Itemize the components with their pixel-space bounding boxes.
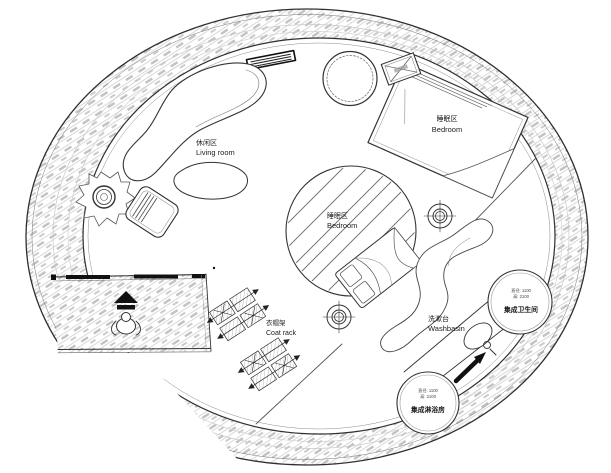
- drawing-dot: [213, 267, 215, 269]
- coat-rack-label-en: Coat rack: [266, 330, 296, 337]
- shower-pod-height: 高: 2100: [420, 393, 437, 400]
- bedroom-center-label-zh: 睡眠区: [327, 212, 348, 220]
- bathroom-pod: 直径: 1100 高: 2100 集成卫生间: [488, 270, 552, 334]
- floor-plan-canvas: 睡眠区 Bedroom: [0, 0, 611, 473]
- washbasin-label-en: Washbasin: [428, 324, 465, 333]
- bathroom-pod-height: 高: 2100: [513, 293, 530, 300]
- bathroom-pod-diameter: 直径: 1100: [511, 287, 531, 293]
- bedroom-upper-label-zh: 睡眠区: [437, 115, 458, 123]
- bathroom-pod-name: 集成卫生间: [503, 305, 538, 314]
- living-label-en: Living room: [196, 148, 235, 157]
- round-table: [323, 52, 377, 106]
- shower-pod-diameter: 直径: 1100: [418, 387, 438, 393]
- washbasin-label-zh: 洗漱台: [428, 314, 449, 323]
- entry-deck: [51, 274, 211, 353]
- floor-plan-drawing: 睡眠区 Bedroom: [0, 0, 611, 473]
- shower-pod-name: 集成淋浴房: [410, 405, 445, 414]
- living-label-zh: 休闲区: [196, 138, 217, 147]
- coat-rack-label-zh: 衣帽架: [266, 318, 286, 327]
- bedroom-upper-label-en: Bedroom: [432, 125, 462, 134]
- bedroom-center-label-en: Bedroom: [327, 221, 357, 230]
- shower-pod: 直径: 1100 高: 2100 集成淋浴房: [397, 372, 459, 434]
